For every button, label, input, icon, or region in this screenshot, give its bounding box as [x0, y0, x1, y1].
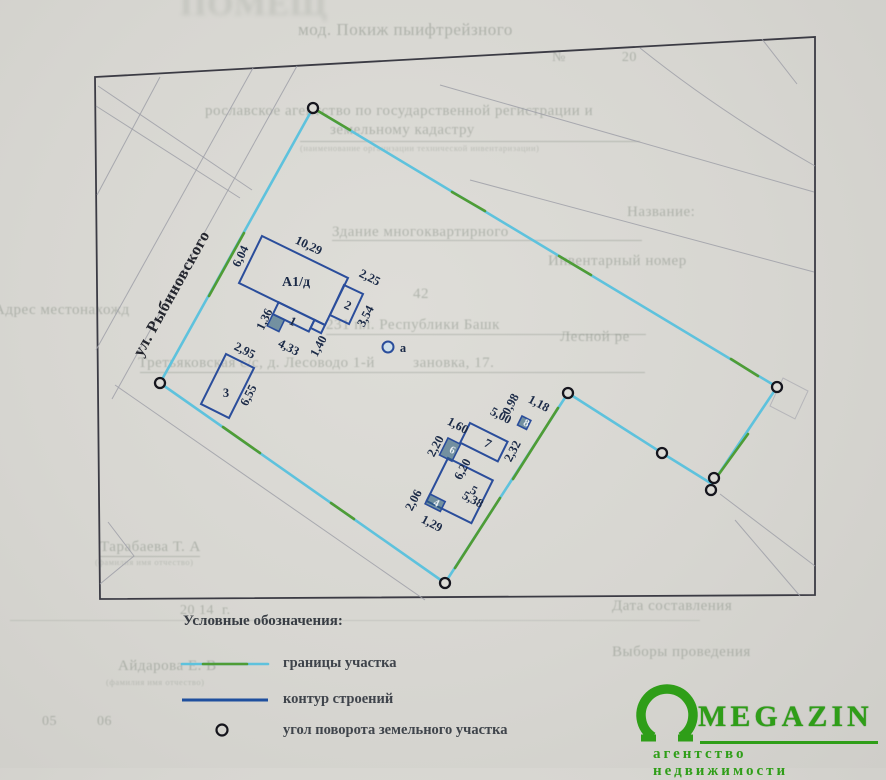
legend-item-building-contour: контур строений [283, 691, 393, 708]
dimension-label: 5,38 [460, 488, 486, 511]
legend-title: Условные обозначения: [183, 613, 343, 630]
parcel-line [470, 180, 814, 272]
legend-item-corner-point: угол поворота земельного участка [283, 722, 508, 739]
parcel-line [115, 385, 425, 600]
dimension-label: 6,20 [451, 456, 474, 482]
legend-item-plot-boundary: границы участка [283, 655, 397, 672]
building-2-label: 2 [342, 298, 354, 313]
dimension-label: 6,55 [237, 382, 259, 408]
boundary-corner-marker [709, 473, 719, 483]
legend-samples [182, 664, 268, 736]
dimension-label: 2,06 [402, 487, 425, 513]
legend-corner-marker-sample [217, 725, 228, 736]
boundary-corner-marker [706, 485, 716, 495]
parcel-line [96, 106, 240, 198]
boundary-green-segment [331, 503, 354, 519]
street-edge-line [96, 68, 253, 350]
omega-icon [630, 682, 704, 752]
building-3-label: 3 [223, 386, 229, 400]
dimension-label: 1,29 [419, 512, 445, 535]
boundary-green-segment [719, 434, 748, 474]
dimension-label: 1,18 [526, 392, 552, 415]
dimension-label: 0,98 [499, 391, 522, 417]
scanned-plan-page: { "document": { "street_label": "ул. Рыб… [0, 0, 886, 768]
point-a-label: а [400, 341, 407, 355]
dimension-label: 1,40 [307, 333, 330, 359]
boundary-green-segment [731, 359, 758, 376]
parcel-line [762, 39, 797, 84]
logo-brand-text: MEGAZIN [698, 700, 873, 734]
dimension-label: 1,60 [445, 414, 471, 437]
point-a-marker [383, 342, 394, 353]
dimension-labels: 10,29 6,04 2,25 3,54 1,36 4,33 1,40 2,95… [229, 233, 552, 535]
boundary-corner-marker [155, 378, 165, 388]
boundary-corner-marker [657, 448, 667, 458]
parcel-line [735, 520, 800, 596]
boundary-corner-marker [440, 578, 450, 588]
dimension-label: 2,25 [357, 266, 383, 288]
site-plan-drawing: ул. Рыбиновского А1/д 2 1 [0, 0, 886, 768]
logo-underline [700, 741, 878, 744]
boundary-corner-marker [563, 388, 573, 398]
omega-arc [641, 689, 693, 737]
parcel-line [440, 85, 814, 192]
parcel-line [97, 77, 160, 195]
parcel-line [720, 494, 815, 566]
parcel-line [100, 522, 134, 584]
road-curve [640, 48, 815, 166]
building-a1d-label: А1/д [282, 275, 310, 290]
dimension-label: 4,33 [276, 336, 302, 358]
logo-tagline-text: агентство недвижимости [653, 746, 788, 780]
parcel-line [98, 86, 252, 190]
building-part1-step2 [311, 320, 325, 333]
boundary-edge-se-notch [568, 393, 712, 484]
boundary-green-segment [313, 108, 350, 130]
boundary-green-segment [452, 192, 485, 211]
boundary-green-segment [223, 427, 260, 453]
building-7-label: 7 [482, 436, 494, 451]
boundary-green-segment [559, 256, 591, 275]
boundary-corner-marker [772, 382, 782, 392]
dimension-label: 2,32 [501, 438, 524, 464]
boundary-edge-sw [160, 383, 445, 583]
boundary-corner-marker [308, 103, 318, 113]
street-name-label: ул. Рыбиновского [129, 227, 214, 359]
